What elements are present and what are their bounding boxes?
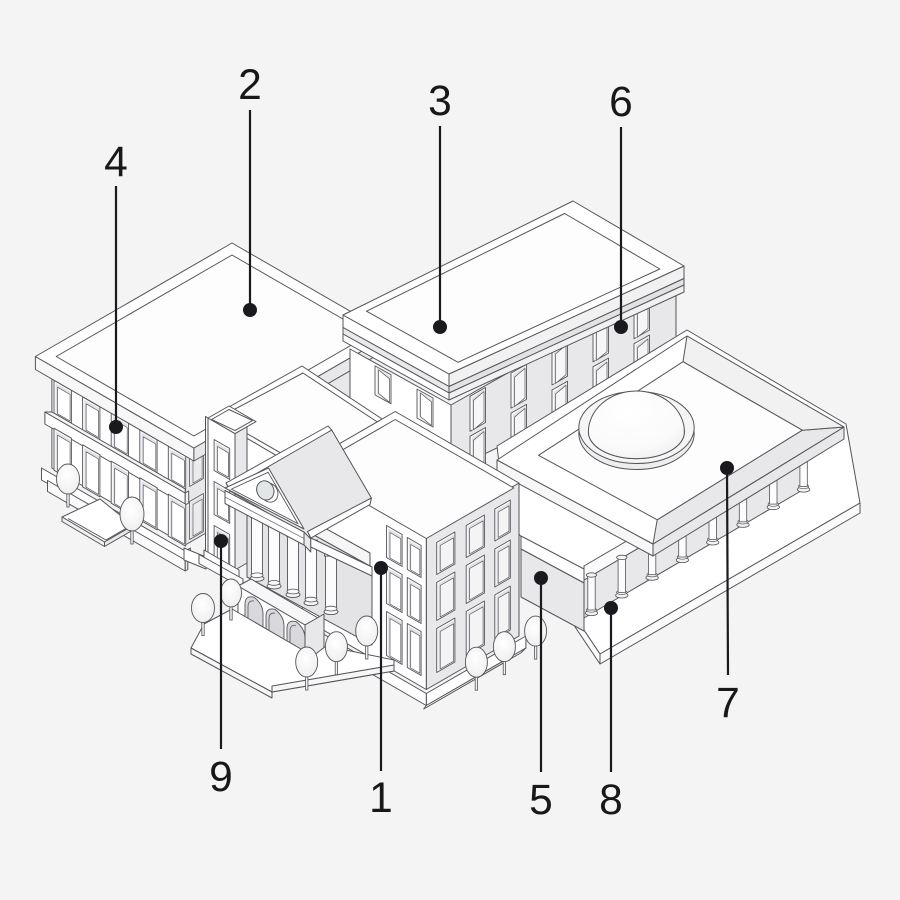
svg-text:1: 1 <box>369 775 393 822</box>
svg-text:4: 4 <box>104 139 128 186</box>
svg-text:2: 2 <box>238 62 262 109</box>
svg-text:7: 7 <box>716 680 740 727</box>
svg-text:3: 3 <box>428 78 452 125</box>
svg-text:8: 8 <box>599 777 623 824</box>
svg-text:6: 6 <box>609 79 633 126</box>
svg-text:5: 5 <box>529 777 553 824</box>
svg-text:9: 9 <box>209 754 233 801</box>
